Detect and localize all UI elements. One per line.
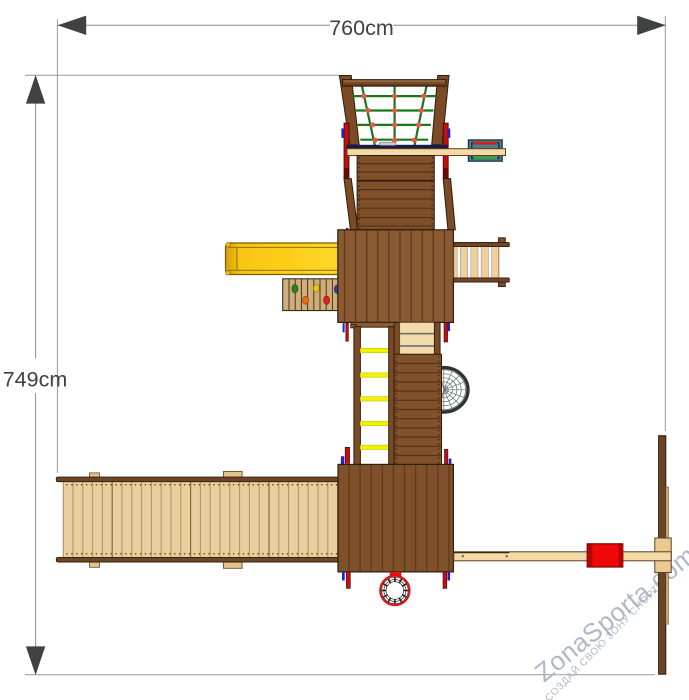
svg-text:749cm: 749cm bbox=[3, 368, 68, 392]
svg-text:760cm: 760cm bbox=[329, 16, 394, 40]
